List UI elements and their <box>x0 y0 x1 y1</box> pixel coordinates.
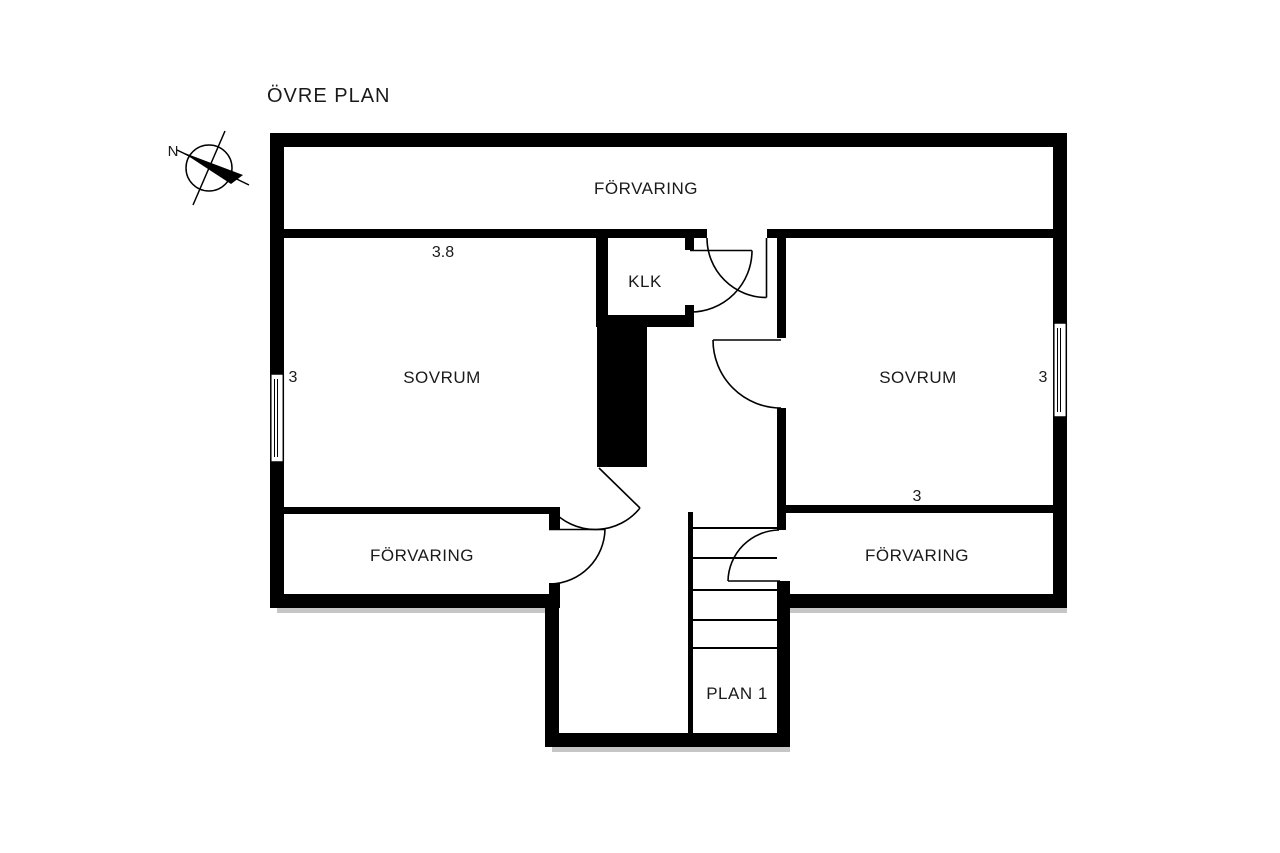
dimension-bedroom-right-depth: 3 <box>913 488 922 505</box>
shaft-block <box>597 327 647 467</box>
wall-klk-right-lower <box>685 305 694 327</box>
wall-storage-bl-right-lower <box>549 583 560 608</box>
room-label-closet: KLK <box>628 272 662 291</box>
compass-icon: N <box>168 131 249 205</box>
shadow-bottom-right <box>790 608 1067 613</box>
dimension-bedroom-left-width: 3.8 <box>432 244 454 261</box>
wall-outer-left-lower <box>270 463 284 608</box>
wall-outer-right-lower <box>1053 418 1067 608</box>
wall-bedroom-left-bottom <box>284 507 556 514</box>
room-label-storage-top: FÖRVARING <box>594 179 698 198</box>
room-label-stair-landing: PLAN 1 <box>706 684 768 703</box>
door-arc-bedroom-right <box>713 340 781 408</box>
shadow-bottom-left <box>277 608 557 613</box>
door-arc-klk <box>690 251 752 313</box>
dimension-bedroom-left-depth: 3 <box>289 369 298 386</box>
wall-outer-bottom-right <box>786 594 1067 608</box>
floor-plan-drawing: N ÖVRE PLAN FÖRVARING KLK SOVRUM SOVRUM … <box>0 0 1280 853</box>
staircase <box>693 528 777 648</box>
floor-plan-page: N ÖVRE PLAN FÖRVARING KLK SOVRUM SOVRUM … <box>0 0 1280 853</box>
room-label-bedroom-left: SOVRUM <box>403 368 481 387</box>
wall-outer-top <box>270 133 1067 147</box>
wall-storage-band-left <box>284 229 707 238</box>
door-arc-top-hall <box>707 238 767 298</box>
compass-needle <box>182 152 243 184</box>
wall-stair-divider <box>688 512 693 733</box>
compass-north-label: N <box>168 143 179 160</box>
wall-hall-right-middle <box>777 408 786 530</box>
wall-hall-right-upper <box>777 235 786 338</box>
room-label-storage-bottom-left: FÖRVARING <box>370 546 474 565</box>
wall-klk-bottom <box>596 315 692 327</box>
wall-protrusion-left <box>545 594 559 747</box>
shadow-protrusion-bottom <box>552 747 790 752</box>
room-label-storage-bottom-right: FÖRVARING <box>865 546 969 565</box>
wall-protrusion-bottom <box>545 733 790 747</box>
wall-hall-right-lower <box>777 581 790 747</box>
room-label-bedroom-right: SOVRUM <box>879 368 957 387</box>
door-arc-storage-bl <box>551 530 605 585</box>
wall-klk-left <box>596 229 608 327</box>
page-title: ÖVRE PLAN <box>267 85 390 107</box>
wall-bedroom-right-bottom <box>777 505 1053 513</box>
wall-outer-left-upper <box>270 133 284 373</box>
doors <box>549 238 781 584</box>
walls <box>270 133 1067 747</box>
wall-storage-bl-right-upper <box>549 507 560 529</box>
window-left <box>270 373 284 463</box>
door-leaf-bedroom-left <box>599 468 640 508</box>
wall-outer-right-upper <box>1053 133 1067 322</box>
wall-outer-bottom-left <box>270 594 557 608</box>
wall-klk-right-upper <box>685 229 694 250</box>
door-arc-storage-br <box>728 530 779 581</box>
wall-shadows <box>277 608 1067 752</box>
window-right <box>1053 322 1067 418</box>
door-arc-bedroom-left <box>552 508 640 530</box>
dimension-bedroom-right-width: 3 <box>1039 369 1048 386</box>
wall-storage-band-right <box>767 229 1053 238</box>
